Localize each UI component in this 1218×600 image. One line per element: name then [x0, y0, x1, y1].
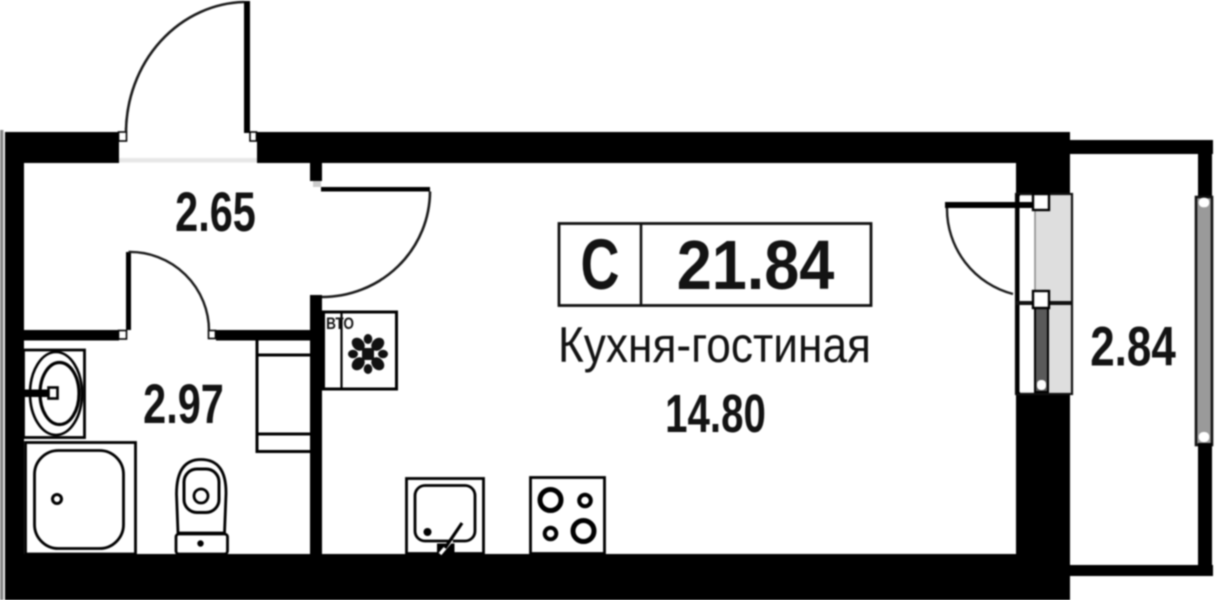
svg-text:2.65: 2.65 — [175, 181, 256, 244]
svg-text:С: С — [581, 226, 620, 305]
svg-text:2.84: 2.84 — [1090, 314, 1176, 377]
svg-text:21.84: 21.84 — [677, 227, 835, 305]
svg-text:14.80: 14.80 — [665, 384, 766, 444]
svg-text:Кухня-гостиная: Кухня-гостиная — [558, 318, 871, 374]
svg-text:2.97: 2.97 — [143, 373, 224, 436]
svg-text:ВТО: ВТО — [326, 315, 354, 334]
